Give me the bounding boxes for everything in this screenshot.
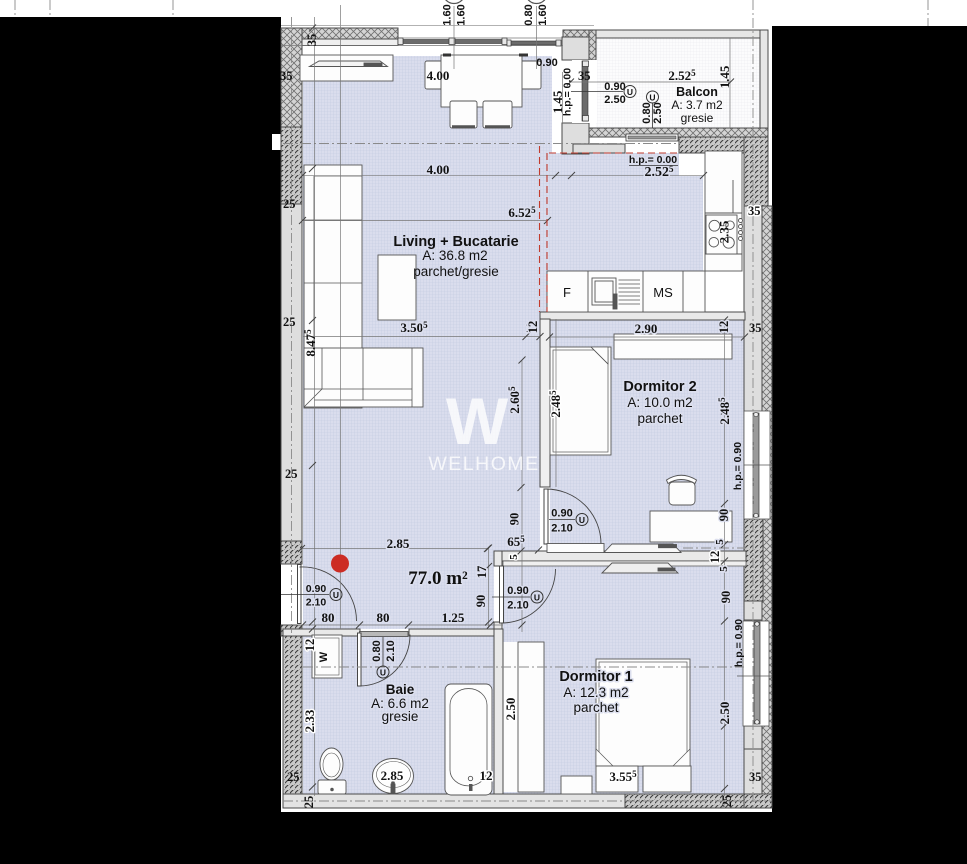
svg-text:1.25: 1.25: [442, 610, 465, 625]
svg-text:MS: MS: [653, 285, 673, 300]
svg-text:35: 35: [578, 69, 591, 83]
svg-text:25: 25: [285, 467, 298, 481]
svg-text:Balcon: Balcon: [676, 85, 718, 99]
svg-text:25: 25: [283, 197, 296, 211]
svg-text:0.80: 0.80: [523, 4, 535, 25]
svg-text:2.90: 2.90: [635, 321, 658, 336]
svg-text:80: 80: [377, 610, 390, 625]
svg-text:U: U: [333, 590, 339, 600]
svg-text:0.90: 0.90: [536, 57, 557, 69]
svg-text:U: U: [649, 93, 655, 103]
svg-text:0.90: 0.90: [507, 585, 528, 597]
svg-text:parchet/gresie: parchet/gresie: [413, 264, 499, 279]
svg-text:U: U: [534, 593, 540, 603]
svg-text:WELHOME: WELHOME: [428, 453, 539, 475]
svg-text:35: 35: [280, 69, 293, 83]
svg-text:W: W: [446, 384, 509, 458]
svg-text:12: 12: [708, 551, 722, 564]
svg-text:parchet: parchet: [573, 700, 618, 715]
svg-text:0.90: 0.90: [306, 583, 327, 595]
svg-text:90: 90: [508, 513, 522, 526]
svg-text:gresie: gresie: [681, 111, 714, 125]
svg-text:1.60: 1.60: [537, 4, 549, 25]
svg-text:35: 35: [749, 321, 762, 335]
svg-text:2.50: 2.50: [652, 102, 664, 123]
svg-text:Dormitor 2: Dormitor 2: [623, 379, 696, 395]
svg-text:F: F: [563, 285, 571, 300]
svg-text:25: 25: [302, 796, 316, 809]
svg-text:4.00: 4.00: [427, 162, 450, 177]
svg-text:h.p.= 0.00: h.p.= 0.00: [629, 154, 677, 166]
svg-text:0.90: 0.90: [551, 508, 572, 520]
svg-text:2.50: 2.50: [717, 702, 732, 725]
svg-text:A: 36.8 m2: A: 36.8 m2: [422, 248, 487, 263]
svg-text:parchet: parchet: [637, 411, 682, 426]
svg-text:h.p.= 0.90: h.p.= 0.90: [732, 442, 744, 490]
svg-text:h.p.= 0.00: h.p.= 0.00: [562, 68, 574, 116]
svg-text:A: 10.0 m2: A: 10.0 m2: [627, 395, 692, 410]
svg-text:2.10: 2.10: [306, 597, 327, 609]
svg-text:17: 17: [475, 566, 489, 579]
svg-text:2.35: 2.35: [717, 220, 732, 243]
svg-text:4.00: 4.00: [427, 68, 450, 83]
svg-text:5: 5: [714, 539, 726, 545]
svg-text:2.33: 2.33: [302, 709, 317, 732]
svg-text:A: 3.7 m2: A: 3.7 m2: [671, 98, 723, 112]
svg-text:25: 25: [283, 315, 296, 329]
svg-text:35: 35: [749, 770, 762, 784]
svg-text:2.10: 2.10: [551, 523, 572, 535]
svg-text:77.0 m²: 77.0 m²: [408, 568, 468, 589]
svg-text:U: U: [579, 515, 585, 525]
svg-text:12: 12: [480, 768, 493, 783]
svg-text:0.80: 0.80: [371, 640, 383, 661]
svg-text:25: 25: [287, 770, 300, 784]
svg-text:5: 5: [508, 554, 520, 560]
svg-text:90: 90: [474, 595, 488, 608]
svg-text:90: 90: [717, 509, 731, 522]
svg-text:1.60: 1.60: [456, 4, 468, 25]
svg-text:U: U: [380, 668, 386, 678]
svg-text:35: 35: [748, 204, 761, 218]
svg-text:5: 5: [718, 566, 730, 572]
svg-text:Dormitor 1: Dormitor 1: [559, 669, 632, 685]
svg-text:Baie: Baie: [386, 682, 415, 697]
svg-text:A: 12.3 m2: A: 12.3 m2: [563, 685, 628, 700]
svg-text:12: 12: [526, 321, 540, 334]
svg-text:gresie: gresie: [382, 709, 419, 724]
svg-text:35: 35: [305, 34, 319, 47]
svg-text:2.10: 2.10: [507, 600, 528, 612]
svg-text:2.10: 2.10: [385, 640, 397, 661]
svg-text:1.60: 1.60: [442, 4, 454, 25]
svg-text:h.p.= 0.90: h.p.= 0.90: [733, 619, 745, 667]
svg-text:U: U: [627, 87, 633, 97]
svg-text:25: 25: [720, 795, 734, 808]
svg-text:80: 80: [322, 610, 335, 625]
svg-text:1.45: 1.45: [717, 65, 732, 88]
svg-text:12: 12: [303, 639, 317, 652]
svg-text:2.85: 2.85: [381, 768, 404, 783]
svg-text:2.85: 2.85: [387, 536, 410, 551]
svg-text:2.50: 2.50: [604, 94, 625, 106]
svg-text:12: 12: [717, 321, 731, 334]
svg-text:2.50: 2.50: [503, 698, 518, 721]
svg-text:W: W: [318, 651, 330, 662]
svg-text:90: 90: [719, 591, 733, 604]
